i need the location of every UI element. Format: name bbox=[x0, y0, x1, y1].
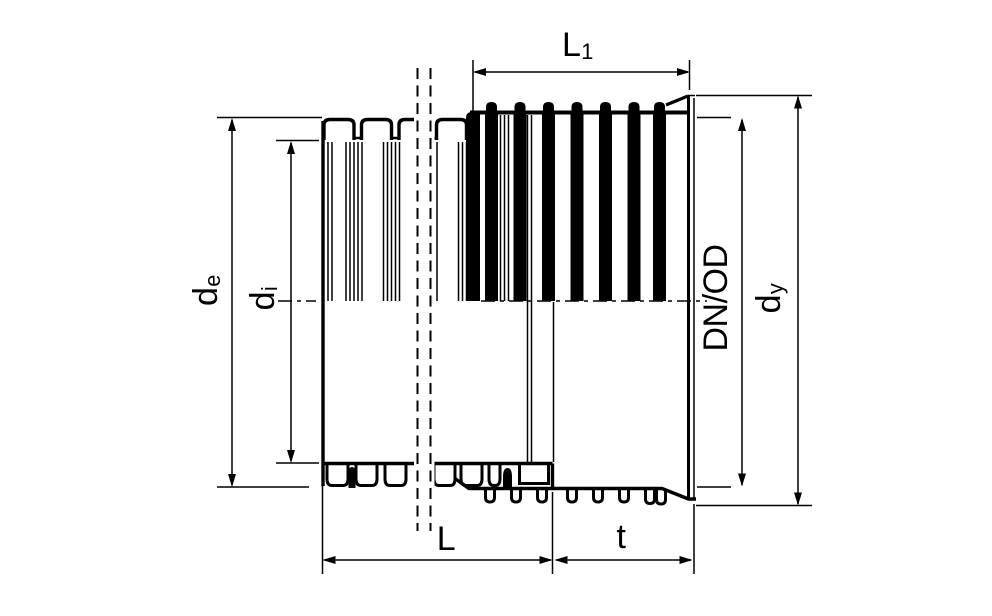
socket-bars bbox=[466, 102, 666, 301]
label-dnod: DN/OD bbox=[693, 223, 739, 373]
pipe-bottom-troughs bbox=[327, 465, 549, 486]
l1-arrow-right bbox=[677, 68, 690, 76]
l-arrow-left bbox=[323, 556, 336, 564]
dnod-arrow-top bbox=[738, 118, 746, 131]
de-arrow-bottom bbox=[228, 474, 236, 487]
dy-arrow-top bbox=[794, 96, 802, 109]
dnod-arrow-bottom bbox=[738, 474, 746, 487]
l1-arrow-left bbox=[473, 68, 486, 76]
label-l1-main: L bbox=[562, 26, 580, 65]
label-l1: L1 bbox=[502, 22, 652, 68]
label-l-main: L bbox=[437, 520, 455, 559]
label-l1-sub: 1 bbox=[581, 39, 593, 65]
pipe-crests bbox=[324, 120, 467, 141]
break-lines bbox=[414, 68, 435, 531]
label-de-sub: e bbox=[200, 275, 226, 287]
socket-mouth-flare bbox=[666, 96, 688, 105]
label-dnod-main: DN/OD bbox=[697, 244, 736, 351]
di-arrow-top bbox=[287, 141, 295, 154]
pipe-corrugation-lines bbox=[328, 142, 475, 301]
label-de: de bbox=[183, 216, 229, 366]
di-arrow-bottom bbox=[287, 450, 295, 463]
dy-arrow-bottom bbox=[794, 493, 802, 506]
label-de-main: d bbox=[187, 288, 226, 306]
de-arrow-top bbox=[228, 118, 236, 131]
socket bbox=[455, 96, 696, 505]
label-dy-sub: y bbox=[763, 284, 789, 294]
label-l: L bbox=[371, 516, 521, 562]
label-t-main: t bbox=[617, 518, 626, 557]
label-di: di bbox=[240, 224, 286, 374]
label-di-main: d bbox=[244, 292, 283, 310]
label-dy-main: d bbox=[750, 295, 789, 313]
label-dy: dy bbox=[746, 224, 792, 374]
drawing-canvas: L1 de di DN/OD dy L t const data = JSON.… bbox=[0, 0, 992, 616]
label-t: t bbox=[546, 514, 696, 560]
label-di-sub: i bbox=[257, 287, 283, 291]
